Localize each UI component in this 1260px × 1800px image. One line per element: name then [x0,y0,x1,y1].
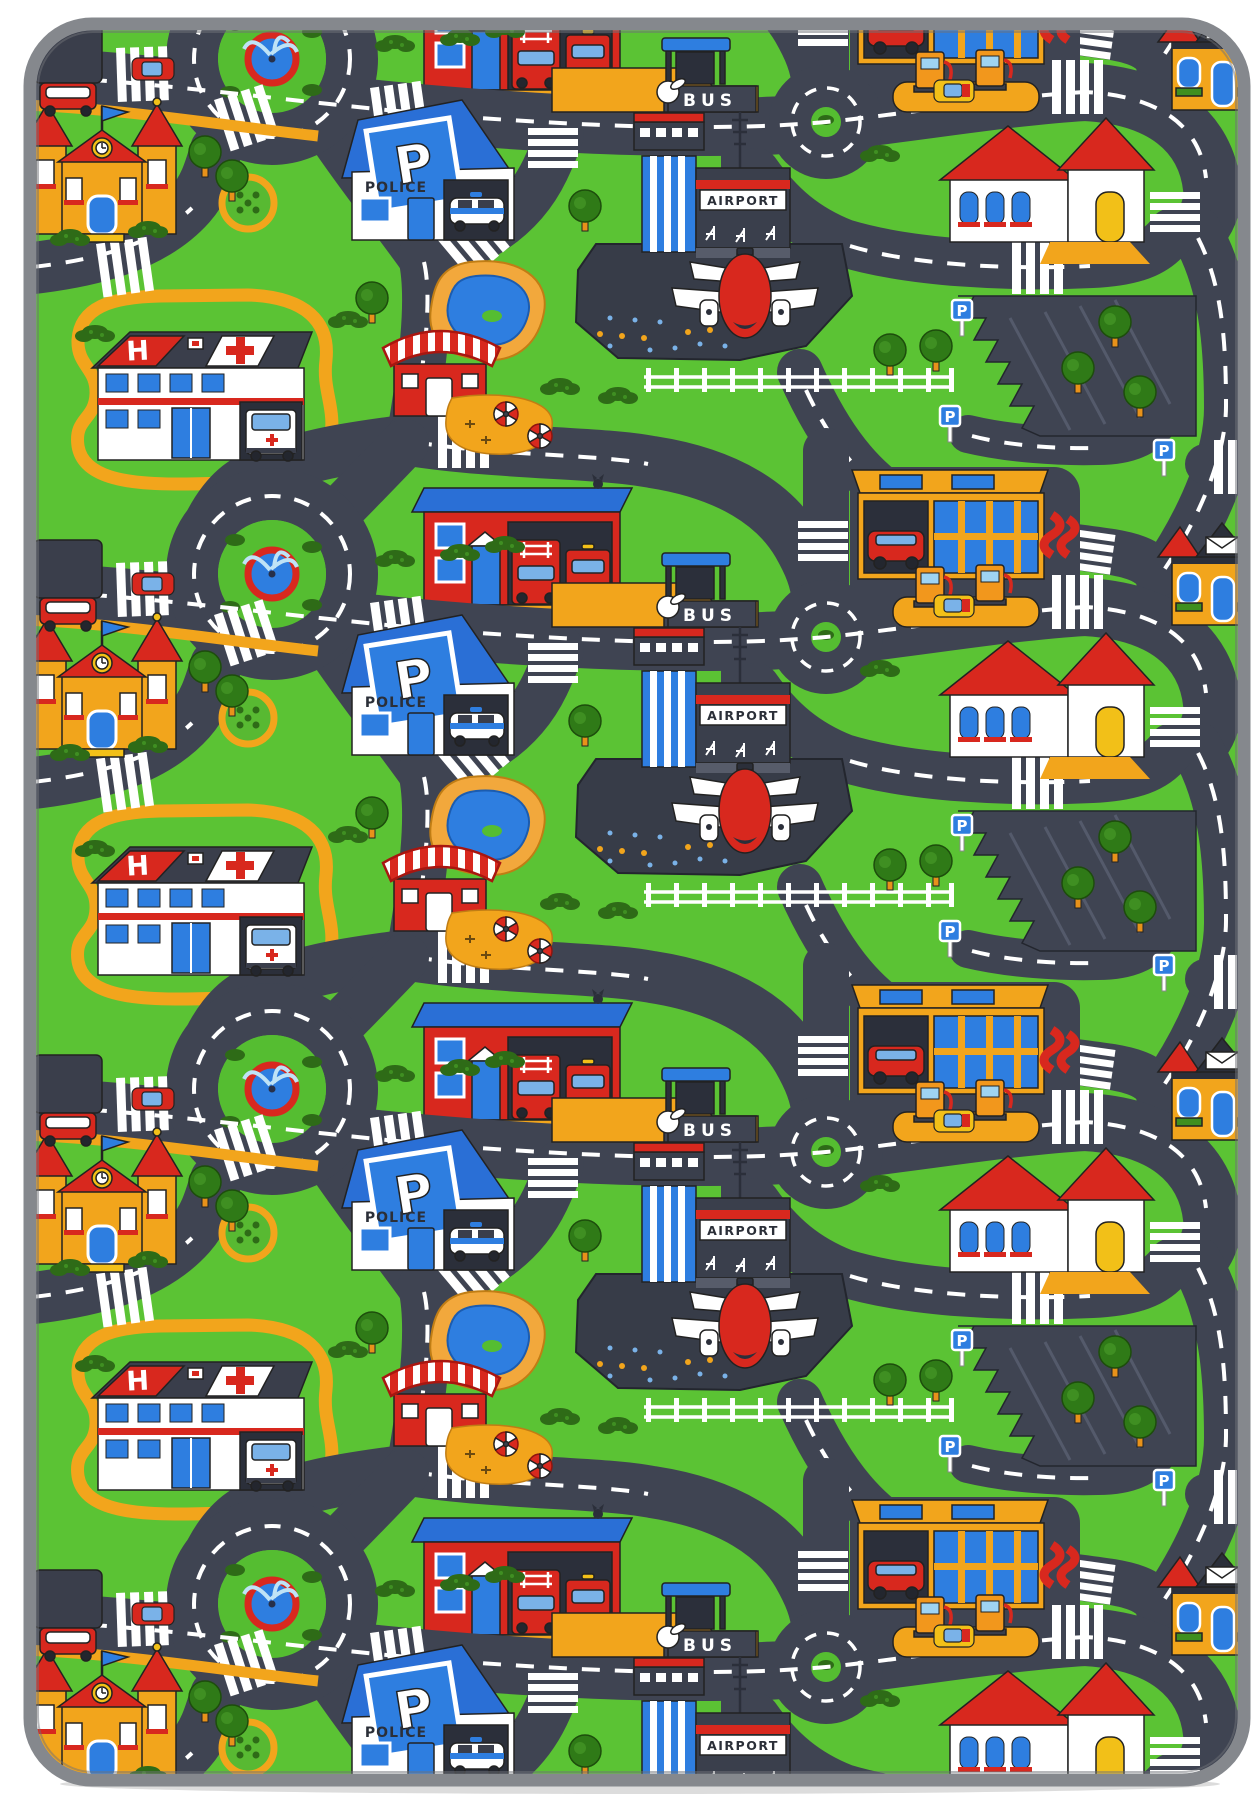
play-rug-graphic: P [0,0,1260,1800]
rug-photo: P [0,0,1260,1800]
